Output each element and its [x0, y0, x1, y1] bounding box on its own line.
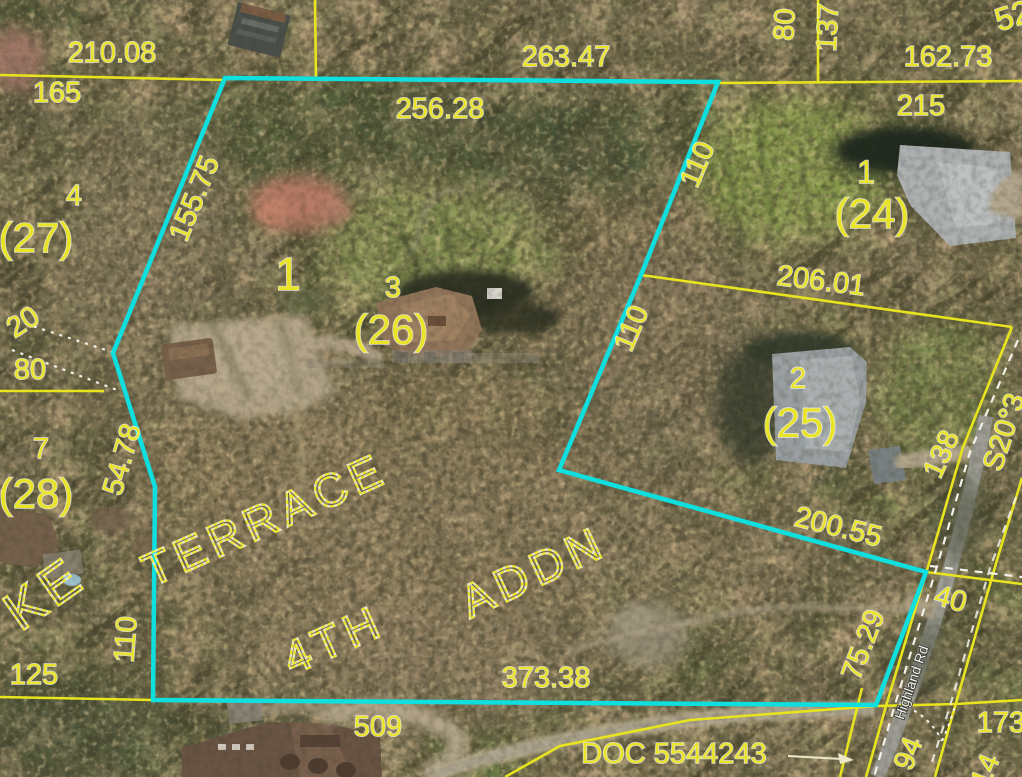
svg-text:210.08: 210.08: [68, 37, 157, 69]
svg-text:3: 3: [385, 272, 401, 304]
svg-text:162.73: 162.73: [904, 41, 993, 73]
svg-text:165: 165: [33, 77, 81, 109]
svg-text:DOC 5544243: DOC 5544243: [581, 738, 766, 770]
svg-text:215: 215: [897, 90, 945, 122]
svg-text:373.38: 373.38: [502, 662, 591, 694]
svg-text:263.47: 263.47: [522, 41, 611, 73]
svg-text:256.28: 256.28: [396, 93, 485, 125]
svg-text:173: 173: [977, 707, 1022, 739]
svg-text:(28): (28): [0, 470, 73, 517]
svg-text:(27): (27): [0, 214, 73, 261]
svg-text:80: 80: [14, 354, 46, 386]
svg-text:2: 2: [790, 362, 807, 395]
svg-text:1: 1: [275, 248, 301, 300]
svg-text:(24): (24): [835, 190, 910, 237]
svg-text:(26): (26): [354, 306, 429, 353]
svg-text:125: 125: [10, 659, 58, 691]
svg-text:4: 4: [66, 180, 82, 212]
svg-text:80: 80: [768, 8, 802, 42]
svg-text:(25): (25): [763, 399, 838, 446]
svg-text:7: 7: [33, 433, 49, 465]
svg-text:1: 1: [857, 154, 875, 190]
svg-text:137: 137: [811, 3, 845, 53]
svg-text:509: 509: [354, 711, 402, 743]
svg-text:110: 110: [108, 615, 143, 663]
